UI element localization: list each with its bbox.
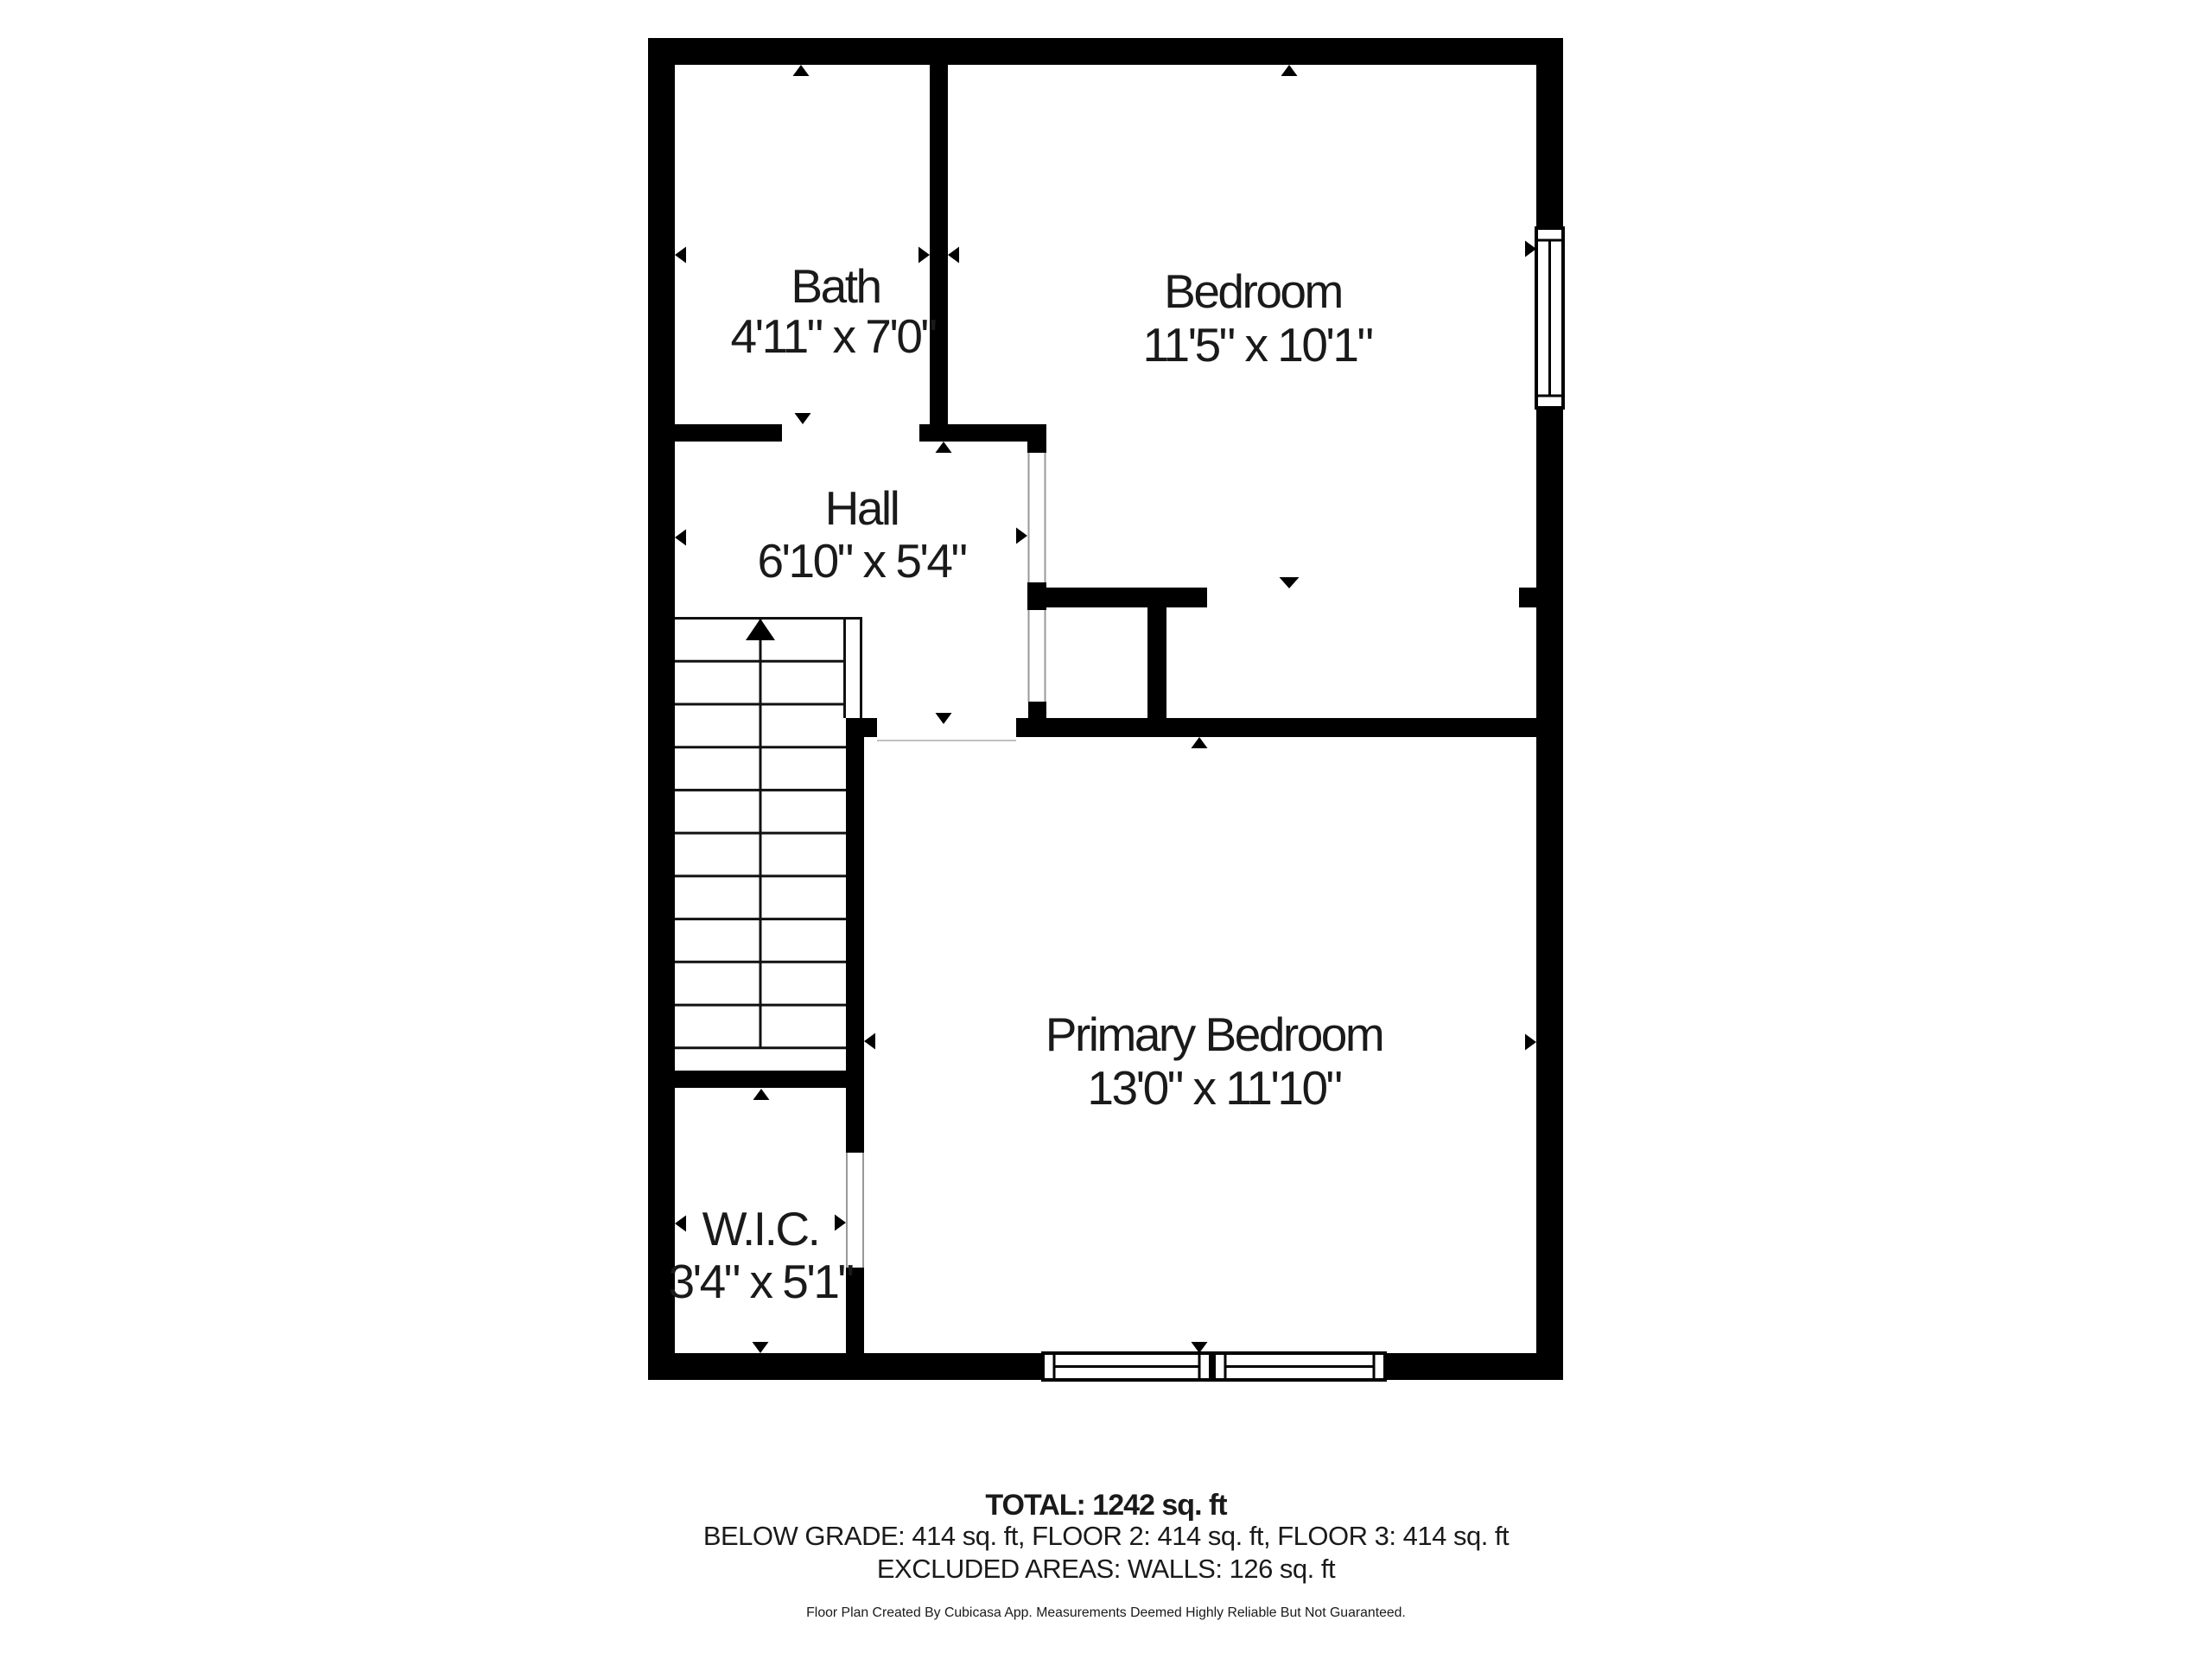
svg-text:6'10" x 5'4": 6'10" x 5'4" (757, 534, 966, 588)
svg-text:BELOW GRADE: 414 sq. ft, FLOOR: BELOW GRADE: 414 sq. ft, FLOOR 2: 414 sq… (703, 1521, 1510, 1551)
svg-text:Bath: Bath (791, 259, 880, 313)
svg-text:EXCLUDED AREAS: WALLS: 126 sq.: EXCLUDED AREAS: WALLS: 126 sq. ft (877, 1554, 1336, 1584)
svg-text:11'5" x 10'1": 11'5" x 10'1" (1142, 318, 1372, 372)
svg-text:13'0" x 11'10": 13'0" x 11'10" (1087, 1061, 1341, 1115)
svg-text:Bedroom: Bedroom (1164, 264, 1342, 318)
svg-text:Primary Bedroom: Primary Bedroom (1046, 1007, 1382, 1061)
svg-text:TOTAL: 1242 sq. ft: TOTAL: 1242 sq. ft (985, 1489, 1227, 1522)
svg-text:3'4" x 5'1": 3'4" x 5'1" (669, 1255, 854, 1308)
svg-text:W.I.C.: W.I.C. (702, 1202, 819, 1255)
svg-text:Floor Plan Created By Cubicasa: Floor Plan Created By Cubicasa App. Meas… (806, 1605, 1406, 1620)
svg-text:Hall: Hall (825, 481, 899, 535)
svg-text:4'11" x 7'0": 4'11" x 7'0" (731, 309, 937, 363)
